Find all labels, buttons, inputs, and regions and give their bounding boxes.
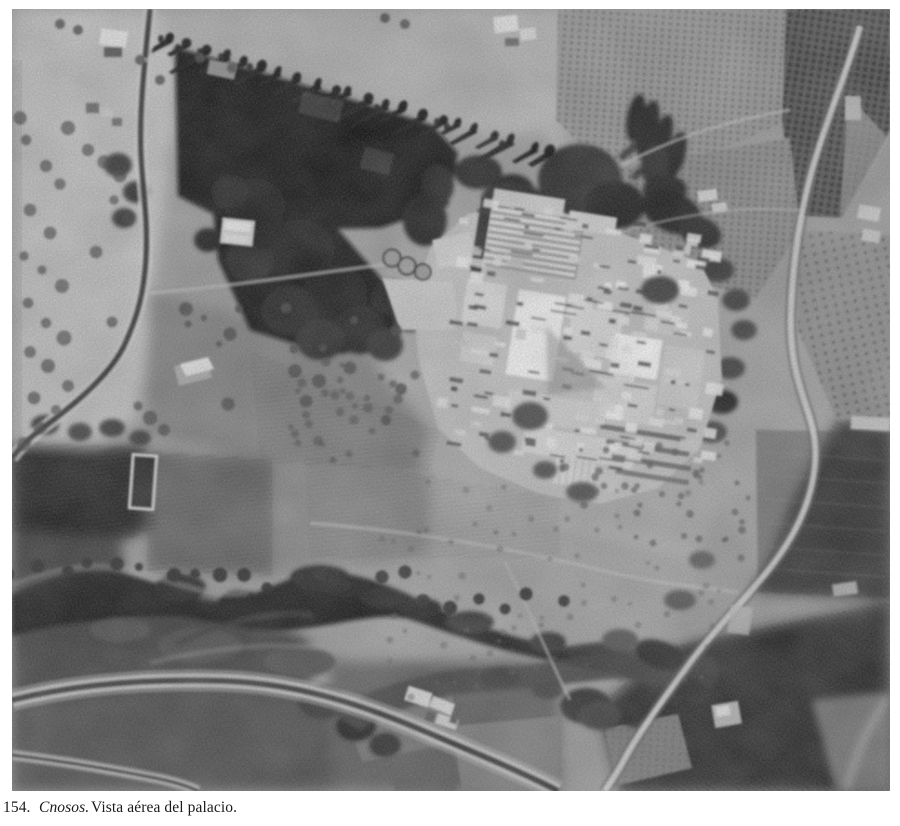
svg-text:154.: 154. (3, 799, 31, 816)
svg-text:Vista aérea del palacio.: Vista aérea del palacio. (91, 799, 237, 816)
svg-text:Cnosos.: Cnosos. (39, 799, 89, 816)
